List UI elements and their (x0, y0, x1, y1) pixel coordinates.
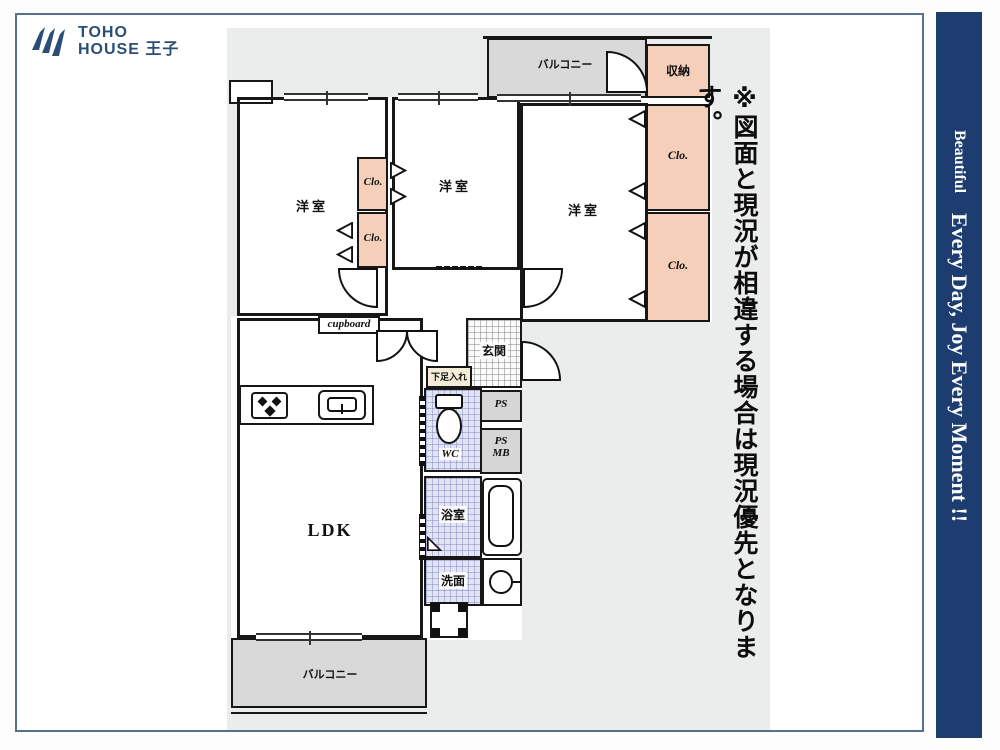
ps-mb-label: PSMB (481, 435, 521, 459)
window (398, 93, 478, 101)
page: { "page": { "logo": { "line1": "TOHO", "… (0, 0, 1000, 750)
storage-label: 収納 (652, 62, 704, 79)
toilet-icon (434, 394, 464, 450)
closet-label: Clo. (648, 148, 708, 163)
toho-logo-mark-icon (30, 24, 70, 60)
banner-slogan: Beautiful Every Day, Joy Every Moment !! (936, 12, 982, 738)
ldk-label: LDK (280, 520, 380, 541)
logo-text: TOHO HOUSE 王子 (78, 25, 179, 59)
washroom-label: 洗面 (428, 572, 478, 589)
logo-line2: HOUSE 王子 (78, 42, 179, 59)
bedroom-middle-label: 洋室 (405, 176, 505, 195)
shoe-cabinet-label: 下足入れ (427, 370, 471, 383)
logo-line1: TOHO (78, 25, 179, 42)
wc-label: WC (430, 448, 470, 460)
toho-house-logo: TOHO HOUSE 王子 (30, 24, 179, 60)
closet-door-marker-icon (336, 222, 353, 239)
ps-label: PS (481, 398, 521, 410)
banner-slogan-small: Beautiful (950, 130, 968, 193)
washbasin-box (482, 558, 522, 606)
sliding-door-window (497, 94, 641, 102)
window (284, 93, 368, 101)
bathroom-label: 浴室 (428, 506, 478, 523)
balcony-top-label: バルコニー (505, 56, 625, 72)
closet-door-marker-icon (628, 222, 646, 240)
washbasin-icon (489, 570, 513, 594)
closet-door-marker-icon (628, 290, 646, 308)
closet-door-marker-icon (628, 110, 646, 128)
entrance-label: 玄関 (470, 342, 518, 359)
sliding-door-window (256, 633, 362, 641)
closet-door-marker-icon (336, 246, 353, 263)
stove-icon (251, 392, 288, 419)
disclaimer-vertical-text: ※図面と現況が相違する場合は現況優先となります。 (716, 84, 762, 684)
balcony-bottom-label: バルコニー (270, 666, 390, 682)
bedroom-left-label: 洋室 (262, 196, 362, 215)
closet-label: Clo. (648, 258, 708, 273)
closet-door-marker-icon (628, 182, 646, 200)
cupboard-label: cupboard (321, 318, 377, 330)
side-banner: Beautiful Every Day, Joy Every Moment !! (936, 12, 982, 738)
bath-door-marker-icon (427, 536, 442, 551)
opening-dashed (436, 266, 482, 269)
ldk-room (237, 318, 423, 638)
wall-hatch (419, 396, 426, 466)
closet-label: Clo. (358, 232, 388, 244)
structural-column-pillar (430, 602, 468, 638)
bathtub-icon (482, 478, 522, 556)
wall-hatch (419, 514, 426, 560)
closet-label: Clo. (358, 176, 388, 188)
banner-slogan-large: Every Day, Joy Every Moment !! (946, 213, 972, 522)
wall (231, 712, 427, 714)
kitchen-sink-icon (318, 390, 366, 420)
bedroom-right-label: 洋室 (530, 200, 638, 219)
